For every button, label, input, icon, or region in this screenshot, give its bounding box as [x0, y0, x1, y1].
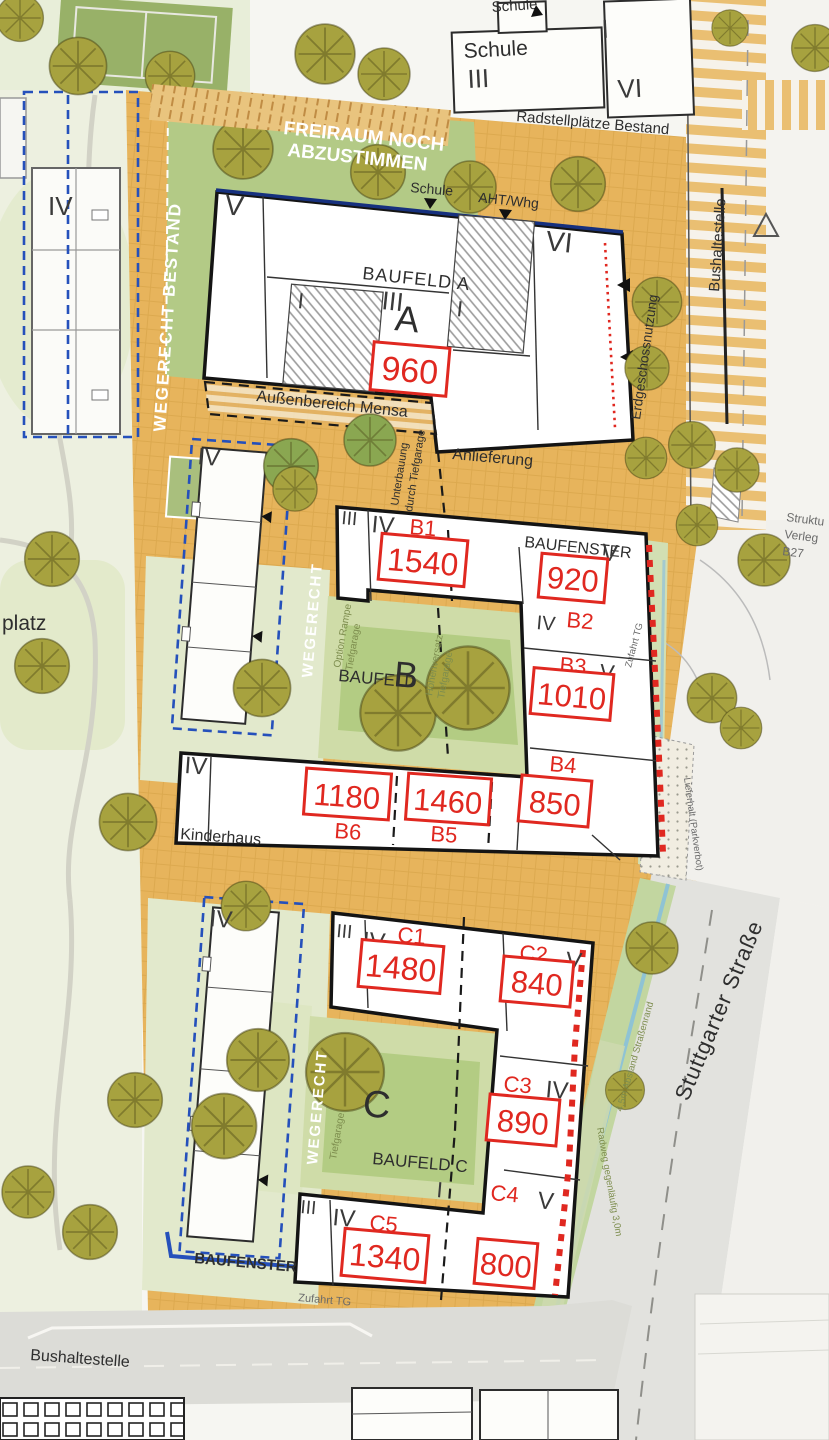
area-c3: 890: [495, 1103, 550, 1142]
area-badge-b3: 1010: [530, 668, 614, 721]
floors-c-iii: III: [336, 921, 354, 943]
area-badge-b2: 920: [538, 553, 608, 603]
site-plan-frame: Schule Schule III I VI Radstellplätze Be…: [0, 0, 829, 1440]
unit-b5-label: B5: [430, 821, 459, 848]
area-c5: 1340: [348, 1236, 422, 1278]
floors-a-vi: VI: [544, 225, 574, 259]
area-b1: 1540: [386, 541, 460, 583]
unit-b2-label: B2: [566, 607, 595, 634]
area-badge-c4: 800: [474, 1238, 538, 1288]
floors-left-top: IV: [48, 191, 73, 221]
baufeld-c-letter: C: [361, 1083, 392, 1127]
floors-kinderhaus-iv: IV: [184, 752, 209, 781]
parking-bottom-right: [695, 1294, 829, 1440]
unit-b6-label: B6: [334, 818, 363, 845]
area-b5: 1460: [412, 782, 483, 822]
baufeld-a-letter: A: [393, 297, 421, 340]
floors-c4-v: V: [536, 1187, 555, 1216]
area-badge-b6: 1180: [303, 768, 391, 820]
floors-b-iii: III: [341, 508, 359, 530]
platz-label: platz: [2, 612, 46, 635]
school-floors-iii: III: [467, 63, 490, 94]
unit-b4-label: B4: [549, 751, 578, 778]
area-badge-b5: 1460: [405, 773, 491, 825]
area-badge-b1: 1540: [378, 533, 468, 586]
building-bottom-left: [0, 1398, 184, 1440]
area-badge-c1: 1480: [358, 940, 444, 994]
school-floors-vi: VI: [617, 73, 643, 104]
floors-a-v: V: [223, 189, 245, 222]
existing-structure-nw: [0, 98, 26, 178]
area-badge-c5: 1340: [341, 1228, 429, 1282]
area-a-960: 960: [380, 350, 440, 393]
struktur-label-3: B27: [782, 544, 805, 561]
floors-b2-iv: IV: [536, 612, 557, 636]
area-badge-c2: 840: [500, 956, 574, 1007]
site-plan-map: Schule Schule III I VI Radstellplätze Be…: [0, 0, 829, 1440]
building-bottom-center2: [480, 1390, 618, 1440]
existing-slab-nw: [32, 168, 120, 434]
floors-c5-iii: III: [300, 1197, 318, 1219]
area-b4: 850: [527, 784, 582, 823]
area-b6: 1180: [312, 777, 381, 817]
area-badge-a: 960: [370, 342, 450, 396]
baufeld-b-letter: B: [392, 653, 419, 696]
area-badge-c3: 890: [486, 1094, 560, 1146]
schule-main-label: Schule: [463, 37, 528, 63]
area-badge-b4: 850: [518, 775, 592, 827]
area-c2: 840: [509, 964, 564, 1003]
area-c4: 800: [478, 1246, 533, 1285]
area-b3: 1010: [536, 676, 608, 717]
floors-left-bottom: IV: [208, 905, 233, 934]
unit-c4-label: C4: [490, 1180, 520, 1207]
area-b2: 920: [546, 560, 601, 599]
crosswalk-top: [742, 80, 829, 130]
area-c1: 1480: [364, 947, 438, 989]
floors-left-mid: IV: [196, 443, 221, 472]
